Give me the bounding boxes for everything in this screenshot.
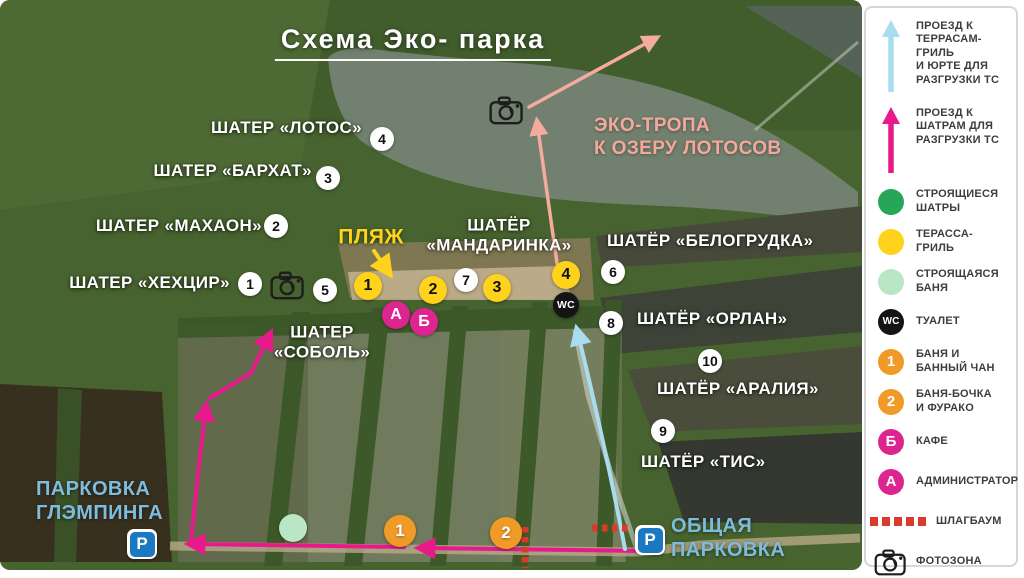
marker-cafe: Б bbox=[410, 308, 438, 336]
marker-tent-1: 1 bbox=[238, 272, 262, 296]
legend-panel: ПРОЕЗД КТЕРРАСАМ-ГРИЛЬИ ЮРТЕ ДЛЯРАЗГРУЗК… bbox=[864, 6, 1018, 567]
marker-terrace-2: 2 bbox=[419, 276, 447, 304]
marker-admin: А bbox=[382, 301, 410, 329]
page-title: Схема Эко- парка bbox=[275, 24, 551, 61]
arrow-magenta-icon bbox=[874, 107, 908, 173]
legend-drive-tents: ПРОЕЗД КШАТРАМ ДЛЯРАЗГРУЗКИ ТС bbox=[874, 107, 1010, 173]
marker-tent-10: 10 bbox=[698, 349, 722, 373]
parking-common-icon: P bbox=[635, 525, 665, 555]
legend-bath-barrel-label: БАНЯ-БОЧКАИ ФУРАКО bbox=[916, 388, 992, 415]
marker-tent-4: 4 bbox=[370, 127, 394, 151]
label-shater-aralia: ШАТЁР «АРАЛИЯ» bbox=[657, 379, 819, 399]
camera-icon bbox=[269, 270, 307, 300]
camera-icon bbox=[874, 548, 908, 576]
marker-terrace-3: 3 bbox=[483, 274, 511, 302]
legend-terrace-grill: ТЕРАССА-ГРИЛЬ bbox=[874, 228, 1010, 255]
legend-drive-terraces-label: ПРОЕЗД КТЕРРАСАМ-ГРИЛЬИ ЮРТЕ ДЛЯРАЗГРУЗК… bbox=[916, 20, 1010, 87]
marker-bath-construction bbox=[279, 514, 307, 542]
label-shater-orlan: ШАТЁР «ОРЛАН» bbox=[637, 309, 787, 329]
marker-tent-7: 7 bbox=[454, 268, 478, 292]
circle-green-icon bbox=[874, 189, 908, 215]
marker-bath-1: 1 bbox=[384, 515, 416, 547]
label-shater-barhat: ШАТЕР «БАРХАТ» bbox=[153, 161, 312, 181]
photo-zone-lake bbox=[488, 95, 526, 125]
label-parking-common: ОБЩАЯПАРКОВКА bbox=[671, 514, 785, 562]
marker-terrace-1: 1 bbox=[354, 272, 382, 300]
legend-barrier: ШЛАГБАУМ bbox=[874, 508, 1010, 535]
eco-park-map-screenshot: Схема Эко- парка ШАТЕР «ЛОТОС»ШАТЕР «БАР… bbox=[0, 0, 1024, 578]
legend-drive-tents-label: ПРОЕЗД КШАТРАМ ДЛЯРАЗГРУЗКИ ТС bbox=[916, 107, 999, 147]
legend-admin: ААДМИНИСТРАТОР bbox=[874, 468, 1010, 495]
camera-icon bbox=[488, 95, 526, 125]
label-shater-lotos: ШАТЕР «ЛОТОС» bbox=[211, 118, 362, 138]
label-eco-trail: ЭКО-ТРОПАК ОЗЕРУ ЛОТОСОВ bbox=[594, 115, 782, 161]
legend-bath-construction: СТРОЯЩАЯСЯБАНЯ bbox=[874, 268, 1010, 295]
legend-photo-zone: ФОТОЗОНА bbox=[874, 548, 1010, 576]
marker-tent-2: 2 bbox=[264, 214, 288, 238]
label-shater-tis: ШАТЁР «ТИС» bbox=[641, 452, 766, 472]
label-shater-sobol: ШАТЕР«СОБОЛЬ» bbox=[274, 323, 370, 364]
legend-admin-label: АДМИНИСТРАТОР bbox=[916, 475, 1018, 488]
photo-zone-shore bbox=[269, 270, 307, 300]
legend-tents-construction-label: СТРОЯЩИЕСЯШАТРЫ bbox=[916, 188, 998, 215]
legend-bath-construction-label: СТРОЯЩАЯСЯБАНЯ bbox=[916, 268, 999, 295]
circle-magenta-icon: Б bbox=[874, 429, 908, 455]
marker-tent-8: 8 bbox=[599, 311, 623, 335]
parking-icon: P bbox=[638, 528, 663, 553]
circle-magenta-icon: А bbox=[874, 469, 908, 495]
arrow-blue-icon bbox=[874, 20, 908, 92]
legend-cafe: БКАФЕ bbox=[874, 428, 1010, 455]
marker-tent-3: 3 bbox=[316, 166, 340, 190]
marker-tent-6: 6 bbox=[601, 260, 625, 284]
circle-wc-icon: WC bbox=[874, 309, 908, 335]
legend-bath-barrel: 2БАНЯ-БОЧКАИ ФУРАКО bbox=[874, 388, 1010, 415]
label-shater-hehcir: ШАТЕР «ХЕХЦИР» bbox=[69, 273, 230, 293]
circle-orange-icon: 2 bbox=[874, 389, 908, 415]
legend-terrace-grill-label: ТЕРАССА-ГРИЛЬ bbox=[916, 228, 973, 255]
camera-icon bbox=[874, 548, 908, 576]
legend-cafe-label: КАФЕ bbox=[916, 435, 948, 448]
marker-tent-9: 9 bbox=[651, 419, 675, 443]
marker-tent-5: 5 bbox=[313, 278, 337, 302]
parking-icon: P bbox=[130, 532, 155, 557]
parking-glamping-icon: P bbox=[127, 529, 157, 559]
circle-orange-icon: 1 bbox=[874, 349, 908, 375]
legend-bath-chan: 1БАНЯ ИБАННЫЙ ЧАН bbox=[874, 348, 1010, 375]
circle-yellow-icon bbox=[874, 229, 908, 255]
legend-bath-chan-label: БАНЯ ИБАННЫЙ ЧАН bbox=[916, 348, 995, 375]
marker-bath-2: 2 bbox=[490, 517, 522, 549]
legend-barrier-label: ШЛАГБАУМ bbox=[936, 515, 1002, 528]
legend-wc-label: ТУАЛЕТ bbox=[916, 315, 960, 328]
legend-photo-zone-label: ФОТОЗОНА bbox=[916, 555, 982, 568]
legend-tents-construction: СТРОЯЩИЕСЯШАТРЫ bbox=[874, 188, 1010, 215]
label-shater-mahaon: ШАТЕР «МАХАОН» bbox=[96, 216, 262, 236]
legend-wc: WCТУАЛЕТ bbox=[874, 308, 1010, 335]
marker-terrace-4: 4 bbox=[552, 261, 580, 289]
map-canvas: Схема Эко- парка ШАТЕР «ЛОТОС»ШАТЕР «БАР… bbox=[0, 0, 862, 570]
label-shater-mandarinka: ШАТЁР«МАНДАРИНКА» bbox=[426, 216, 571, 257]
marker-wc: WC bbox=[553, 292, 579, 318]
dashed-red-icon bbox=[874, 517, 928, 526]
label-shater-belogrudka: ШАТЁР «БЕЛОГРУДКА» bbox=[607, 231, 813, 251]
legend-drive-terraces: ПРОЕЗД КТЕРРАСАМ-ГРИЛЬИ ЮРТЕ ДЛЯРАЗГРУЗК… bbox=[874, 20, 1010, 92]
label-parking-glamping: ПАРКОВКАГЛЭМПИНГА bbox=[36, 477, 163, 525]
label-beach: ПЛЯЖ bbox=[338, 224, 404, 249]
circle-lightgreen-icon bbox=[874, 269, 908, 295]
